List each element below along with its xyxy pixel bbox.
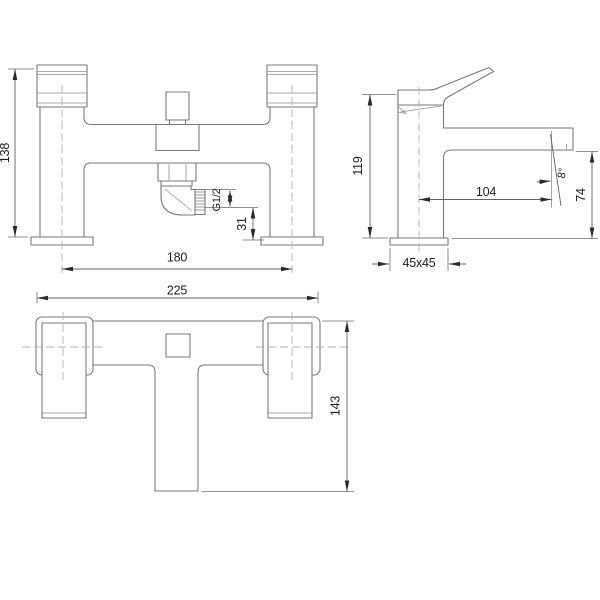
side-height-dim-label: 119 xyxy=(351,156,365,176)
front-outlet-height-dimension: 31 xyxy=(235,208,264,241)
outlet-thread xyxy=(195,190,205,215)
spout xyxy=(444,128,574,238)
front-thread-dimension: G1/2 xyxy=(205,188,258,211)
side-height-dimension: 119 xyxy=(351,95,396,239)
lever-handle xyxy=(398,68,494,106)
base-size-dim-label: 45x45 xyxy=(402,256,435,270)
side-reach-dimension: 104 xyxy=(419,185,552,200)
reach-dim-label: 104 xyxy=(476,185,497,199)
thread-dim-label: G1/2 xyxy=(211,188,223,211)
plan-depth-dim-label: 143 xyxy=(329,396,343,417)
tap-body xyxy=(398,105,444,238)
front-height-dimension: 138 xyxy=(0,69,34,237)
plan-width-dim-label: 225 xyxy=(167,284,188,298)
diverter-body-block xyxy=(156,125,199,151)
diverter-knob xyxy=(166,92,189,120)
side-view: 8° 104 119 74 45x45 xyxy=(351,68,598,272)
plan-view: 225 143 xyxy=(22,284,354,492)
flow-angle-dimension: 8° xyxy=(537,131,569,208)
plan-width-dimension: 225 xyxy=(37,284,318,304)
plan-diverter-square xyxy=(166,334,190,357)
outlet-offset-dim-label: 31 xyxy=(235,217,249,231)
shower-outlet-elbow xyxy=(158,163,205,215)
front-view: G1/2 31 138 180 xyxy=(0,65,323,277)
diverter-knob-neck xyxy=(170,120,186,125)
plan-left-handle xyxy=(42,323,86,418)
angle-dim-label: 8° xyxy=(556,167,570,179)
plan-right-handle xyxy=(268,323,312,418)
spout-height-dimension: 74 xyxy=(452,152,598,239)
body-top-face xyxy=(398,106,441,114)
base-size-dimension: 45x45 xyxy=(372,248,466,271)
spout-height-dim-label: 74 xyxy=(574,188,588,202)
front-centres-dim-label: 180 xyxy=(167,251,188,265)
front-height-dim-label: 138 xyxy=(0,143,12,164)
technical-drawing-canvas: G1/2 31 138 180 xyxy=(0,0,600,600)
plan-beam-and-stem xyxy=(93,365,263,491)
